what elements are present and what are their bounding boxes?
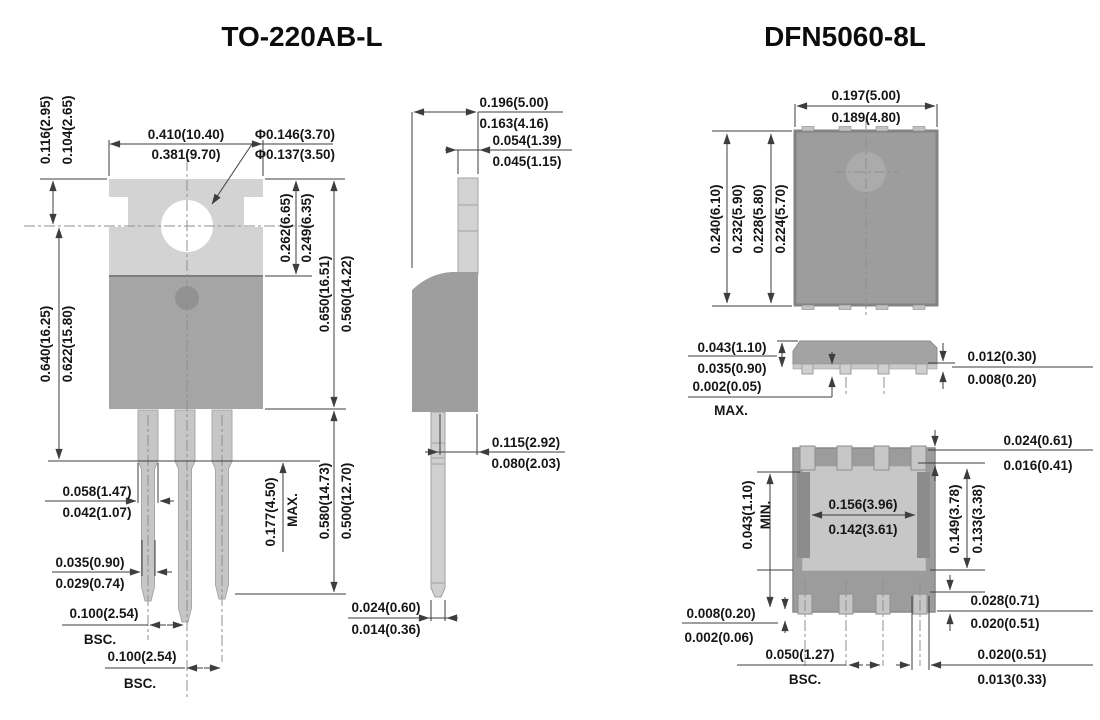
dim-dfn-width-max: 0.197(5.00) [831, 88, 900, 103]
dim-tab-height-min: 0.560(14.22) [339, 256, 354, 333]
dim-lead-width-upper-min: 0.042(1.07) [62, 505, 131, 520]
dim-pad-standoff-min: 0.002(0.06) [684, 630, 753, 645]
to220-side-lead [431, 412, 445, 597]
dim-hole-pos-min: 0.249(6.35) [299, 193, 314, 262]
dim-dfn-pad-thickness-min: 0.008(0.20) [967, 372, 1036, 387]
title-to220: TO-220AB-L [221, 21, 382, 52]
dim-lead-width-upper-max: 0.058(1.47) [62, 484, 131, 499]
tab-notch-left [109, 197, 128, 227]
dim-dfn-pad-thickness-max: 0.012(0.30) [967, 349, 1036, 364]
dim-dfn-height-min: 0.035(0.90) [697, 361, 766, 376]
dim-edge-min-label: MIN. [758, 501, 773, 530]
dim-dfn-standoff: 0.002(0.05) [692, 379, 761, 394]
dim-hole-dia-max: Φ0.146(3.70) [255, 127, 335, 142]
title-dfn: DFN5060-8L [764, 21, 926, 52]
tab-notch-right [244, 197, 263, 227]
dim-pitch1-value: 0.100(2.54) [69, 606, 138, 621]
dim-pad-length-min: 0.020(0.51) [970, 616, 1039, 631]
dim-depth-max: 0.196(5.00) [479, 95, 548, 110]
to220-front-view [24, 160, 310, 700]
dim-epad-width-min: 0.142(3.61) [828, 522, 897, 537]
dim-dfn-length-4: 0.224(5.70) [773, 184, 788, 253]
dim-edge-min-value: 0.043(1.10) [740, 480, 755, 549]
to220-side-body [412, 272, 478, 412]
dim-depth-min: 0.163(4.16) [479, 116, 548, 131]
dim-lead-length-min: 0.500(12.70) [339, 463, 354, 540]
dim-dfn-width-min: 0.189(4.80) [831, 110, 900, 125]
dim-pad-standoff-max: 0.008(0.20) [686, 606, 755, 621]
dim-shoulder-max: 0.177(4.50) [263, 477, 278, 546]
dim-lead-width-lower-min: 0.029(0.74) [55, 576, 124, 591]
dim-lead-thickness-min: 0.014(0.36) [351, 622, 420, 637]
dim-dfn-pitch-bsc: BSC. [789, 672, 821, 687]
dim-tab-height-max: 0.650(16.51) [317, 256, 332, 333]
epad-rail-right [917, 472, 930, 558]
dim-dfn-length-3: 0.228(5.80) [751, 184, 766, 253]
dfn-seating-strip [793, 364, 937, 369]
dim-lead-offset-max: 0.115(2.92) [492, 435, 560, 450]
dfn-exposed-pad [802, 466, 926, 571]
dim-body-width-min: 0.381(9.70) [151, 147, 220, 162]
dfn-side-view [793, 341, 937, 397]
dim-pitch2-bsc: BSC. [124, 676, 156, 691]
package-dimension-drawing: TO-220AB-L DFN5060-8L 0.116(2.95) 0.104(… [0, 0, 1100, 720]
dim-tab-offset-max: 0.116(2.95) [38, 96, 53, 164]
dim-dfn-height-max: 0.043(1.10) [697, 340, 766, 355]
dfn-body-side [793, 341, 937, 364]
dim-lead-length-max: 0.580(14.73) [317, 463, 332, 540]
dim-hole-dia-min: Φ0.137(3.50) [255, 147, 335, 162]
dim-lead-width-lower-max: 0.035(0.90) [55, 555, 124, 570]
epad-rail-left [797, 472, 810, 558]
dim-tab-offset-min: 0.104(2.65) [60, 95, 75, 164]
dim-dfn-pad-width-min: 0.013(0.33) [977, 672, 1046, 687]
dfn-bottom-view [793, 446, 935, 666]
dim-tab-depth-min: 0.045(1.15) [492, 154, 561, 169]
dim-shoulder-max-label: MAX. [285, 493, 300, 527]
dim-lead-thickness-max: 0.024(0.60) [351, 600, 420, 615]
dim-epad-length-max: 0.149(3.78) [947, 484, 962, 553]
dim-hole-pos-max: 0.262(6.65) [278, 193, 293, 262]
dim-pad-pullback-max: 0.024(0.61) [1003, 433, 1072, 448]
dim-pad-length-max: 0.028(0.71) [970, 593, 1039, 608]
dim-pad-pullback-min: 0.016(0.41) [1003, 458, 1072, 473]
dim-tab-depth-max: 0.054(1.39) [492, 133, 561, 148]
dim-dfn-length-1: 0.240(6.10) [708, 184, 723, 253]
dim-pitch2-value: 0.100(2.54) [107, 649, 176, 664]
dim-epad-length-min: 0.133(3.38) [970, 484, 985, 553]
dim-overall-height-max: 0.640(16.25) [38, 306, 53, 383]
dim-dfn-standoff-label: MAX. [714, 403, 748, 418]
dfn-top-view [795, 118, 937, 318]
dim-pitch1-bsc: BSC. [84, 632, 116, 647]
dim-dfn-length-2: 0.232(5.90) [730, 184, 745, 253]
to220-side-tab [458, 178, 478, 274]
dim-dfn-pad-width-max: 0.020(0.51) [977, 647, 1046, 662]
dim-lead-offset-min: 0.080(2.03) [491, 456, 560, 471]
dim-dfn-pitch-value: 0.050(1.27) [765, 647, 834, 662]
dim-body-width-max: 0.410(10.40) [148, 127, 225, 142]
lead-2 [175, 410, 195, 622]
dim-overall-height-min: 0.622(15.80) [60, 306, 75, 383]
dim-epad-width-max: 0.156(3.96) [828, 497, 897, 512]
to220-side-view [412, 178, 478, 597]
